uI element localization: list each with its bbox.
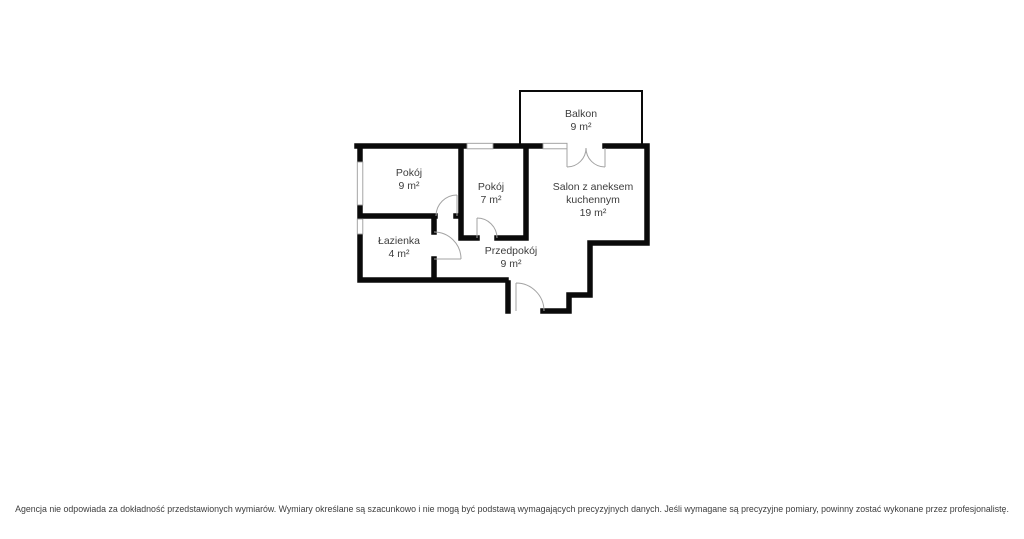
room-name: Przedpokój <box>485 245 538 258</box>
window-pokoj-7 <box>467 143 493 149</box>
door-arc-entrance <box>516 283 544 311</box>
room-label-pokoj-7: Pokój 7 m² <box>478 181 504 207</box>
disclaimer-text: Agencja nie odpowiada za dokładność prze… <box>0 503 1024 515</box>
room-area: 9 m² <box>485 258 538 271</box>
floor-plan-page: Balkon 9 m² Pokój 9 m² Pokój 7 m² Salon … <box>0 0 1024 539</box>
room-label-lazienka: Łazienka 4 m² <box>378 235 420 261</box>
room-name: Balkon <box>565 108 597 121</box>
window-salon <box>543 143 567 149</box>
room-area: 4 m² <box>378 248 420 261</box>
door-arc-pokoj-7 <box>477 218 497 238</box>
room-label-balkon: Balkon 9 m² <box>565 108 597 134</box>
room-label-przedpokoj: Przedpokój 9 m² <box>485 245 538 271</box>
door-arc-balcony-double <box>567 148 605 167</box>
room-name: Salon z aneksem <box>553 181 634 194</box>
room-area: 7 m² <box>478 194 504 207</box>
room-label-pokoj-9: Pokój 9 m² <box>396 167 422 193</box>
room-area: 9 m² <box>396 180 422 193</box>
room-name: Pokój <box>396 167 422 180</box>
window-lazienka <box>357 219 363 234</box>
room-label-salon: Salon z aneksem kuchennym 19 m² <box>553 181 634 220</box>
door-arc-pokoj-9 <box>436 195 457 216</box>
room-area: 19 m² <box>553 207 634 220</box>
room-area: 9 m² <box>565 121 597 134</box>
room-name: Pokój <box>478 181 504 194</box>
window-pokoj-9 <box>357 162 363 205</box>
door-arc-lazienka <box>434 232 461 259</box>
room-name-line-2: kuchennym <box>553 194 634 207</box>
room-name: Łazienka <box>378 235 420 248</box>
